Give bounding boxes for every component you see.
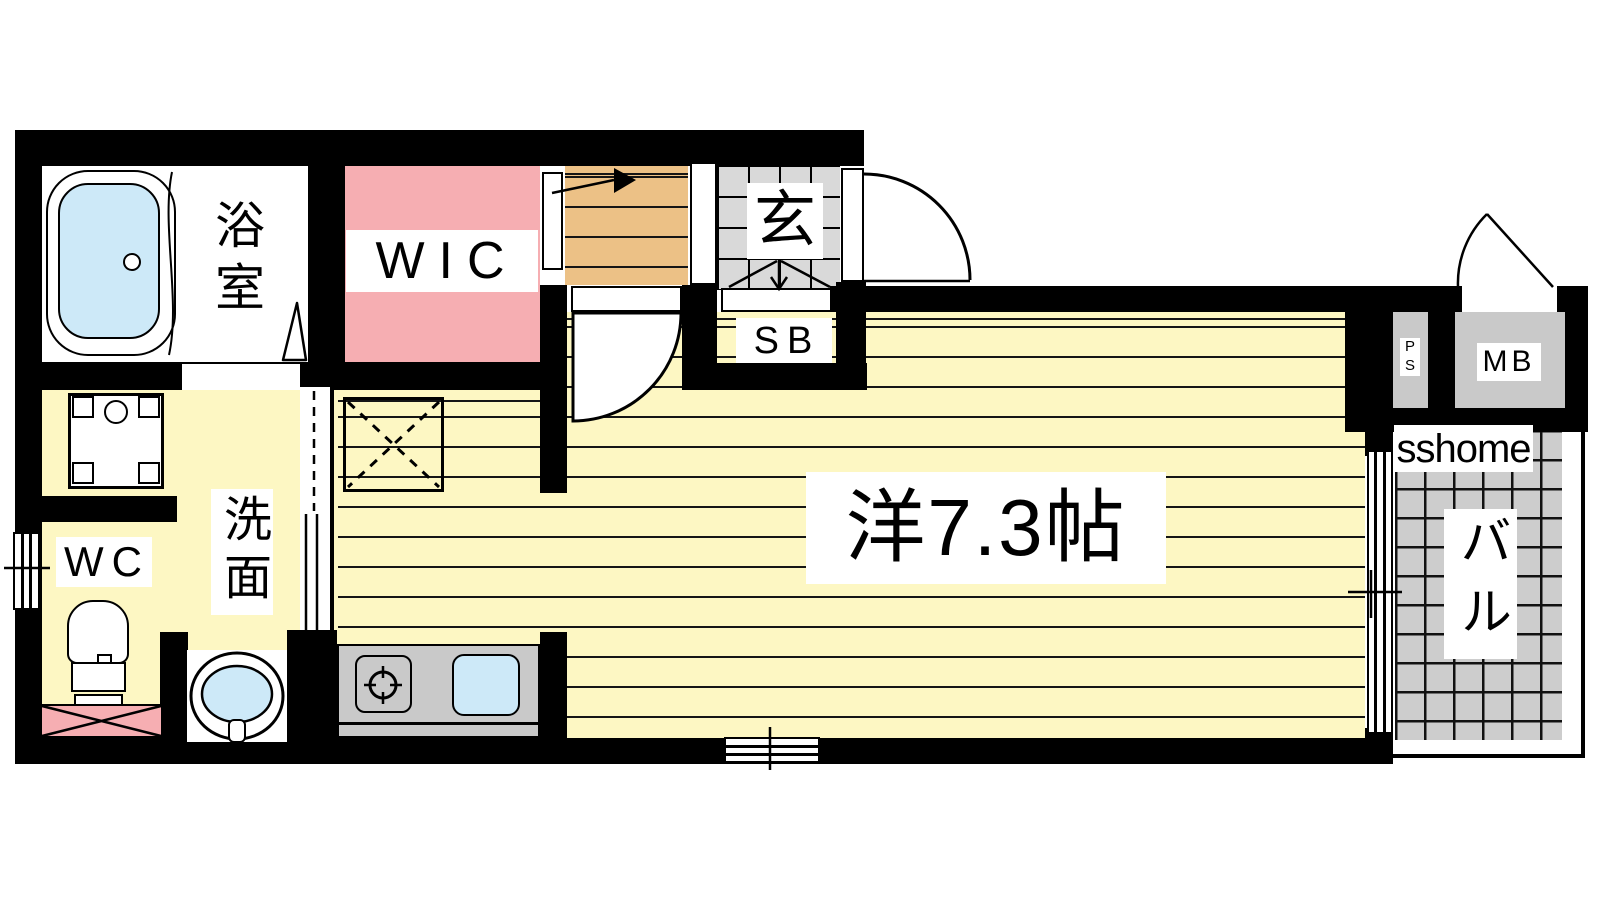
washer-pan-corner bbox=[72, 396, 94, 418]
bathroom-threshold bbox=[182, 362, 300, 390]
wall bbox=[836, 282, 866, 368]
label-wic: WIC bbox=[346, 230, 538, 292]
bottom-window-pane-line bbox=[726, 745, 818, 748]
stove bbox=[355, 655, 412, 713]
bathtub-drain-knob bbox=[123, 253, 141, 271]
bottom-window bbox=[724, 737, 820, 763]
label-shoe-box: SB bbox=[736, 318, 832, 363]
label-entrance: 玄 bbox=[747, 183, 823, 259]
wall bbox=[540, 285, 567, 493]
label-bathroom: 浴室 bbox=[203, 197, 269, 325]
washer-drain bbox=[104, 400, 128, 424]
wc-window-pane-line bbox=[21, 534, 24, 608]
sliding-window-rail bbox=[1374, 452, 1377, 732]
watermark-sshome: sshome bbox=[1394, 425, 1533, 472]
entrance-step bbox=[721, 288, 832, 312]
label-main-room: 洋7.3帖 bbox=[806, 472, 1166, 584]
pocket-door-jamb bbox=[330, 387, 334, 632]
wall bbox=[15, 130, 42, 764]
meter-box-door-arc bbox=[1458, 214, 1487, 287]
label-wc: WC bbox=[56, 537, 152, 587]
bathroom-door-symbol bbox=[283, 303, 306, 360]
floor-plan: 浴室 WIC 玄 SB WC 洗面 洋7.3帖 バル sshome PS MB bbox=[0, 0, 1600, 900]
wall bbox=[160, 632, 188, 740]
label-washroom: 洗面 bbox=[211, 489, 273, 615]
wic-folding-door bbox=[542, 172, 563, 270]
kitchen-opening-floor bbox=[540, 493, 567, 632]
wall bbox=[287, 630, 337, 742]
hall-door-leaf bbox=[571, 286, 682, 312]
wall bbox=[298, 362, 565, 390]
label-balcony: バル bbox=[1444, 509, 1517, 659]
meter-box-door-gap bbox=[1462, 286, 1557, 312]
wall bbox=[308, 130, 345, 390]
washer-pan-corner bbox=[138, 396, 160, 418]
hall-entrance-partition bbox=[690, 162, 717, 285]
wc-mat bbox=[40, 704, 163, 738]
bathtub-inner bbox=[58, 183, 160, 339]
wall bbox=[37, 496, 177, 522]
overhead-cabinet bbox=[343, 397, 444, 492]
wc-window-pane-line bbox=[29, 534, 32, 608]
hall-wood-floor bbox=[565, 162, 688, 285]
kitchen-sink bbox=[452, 654, 520, 716]
kitchen-counter-edge bbox=[339, 722, 538, 725]
sliding-window-rail bbox=[1383, 452, 1386, 732]
toilet-tank bbox=[71, 662, 126, 692]
wall bbox=[40, 362, 184, 390]
entry-door-leaf bbox=[841, 168, 864, 282]
wall bbox=[540, 632, 567, 740]
vanity-counter bbox=[187, 650, 287, 742]
pocket-door-channel bbox=[300, 387, 330, 630]
entry-door-arc bbox=[864, 174, 970, 280]
washer-pan-corner bbox=[72, 462, 94, 484]
bottom-window-pane-line bbox=[726, 753, 818, 756]
wc-window bbox=[13, 532, 40, 610]
wall bbox=[15, 130, 864, 166]
label-meter-box: MB bbox=[1477, 343, 1541, 381]
label-pipe-space: PS bbox=[1400, 338, 1420, 376]
washer-pan-corner bbox=[138, 462, 160, 484]
meter-box-door-leaf bbox=[1487, 214, 1553, 287]
wall bbox=[830, 286, 1370, 312]
balcony-sliding-window bbox=[1367, 450, 1393, 734]
